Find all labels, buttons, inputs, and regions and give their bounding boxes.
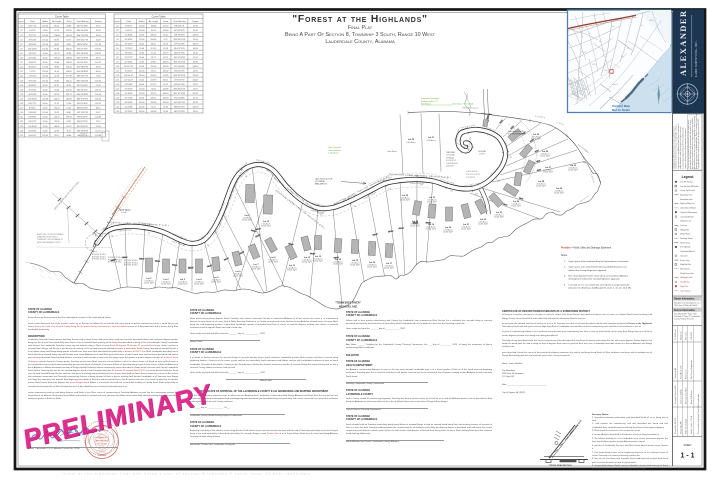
svg-text:147.93: 147.93 xyxy=(151,79,157,81)
svg-text:50.00: 50.00 xyxy=(43,58,48,60)
svg-text:N65°16'50"W: N65°16'50"W xyxy=(77,80,88,82)
svg-text:Fire Hydrant: Fire Hydrant xyxy=(680,246,691,249)
svg-text:22,651 Sq Ft: 22,651 Sq Ft xyxy=(568,169,578,172)
svg-text:Calculated Point: Calculated Point xyxy=(680,215,694,218)
svg-text:N 88°14'51" E 60.00': N 88°14'51" E 60.00' xyxy=(466,174,481,176)
svg-text:146.25: 146.25 xyxy=(54,126,60,128)
svg-text:QUARTER OF SECTION 8: QUARTER OF SECTION 8 xyxy=(37,236,57,239)
svg-text:111.79: 111.79 xyxy=(66,126,72,128)
svg-text:111°45'16": 111°45'16" xyxy=(28,126,37,128)
svg-text:1 - 1: 1 - 1 xyxy=(680,453,694,460)
svg-text:Copyright Alexander Land Surve: Copyright Alexander Land Surveying Inc a… xyxy=(697,119,700,169)
svg-text:275.00: 275.00 xyxy=(139,39,145,41)
svg-text:C9: C9 xyxy=(116,62,118,64)
svg-text:C12: C12 xyxy=(353,206,356,208)
svg-text:22,651 Sq Ft: 22,651 Sq Ft xyxy=(261,225,271,228)
svg-text:92.82: 92.82 xyxy=(163,106,168,108)
svg-text:Curve #: Curve # xyxy=(18,20,26,23)
svg-text:123.59: 123.59 xyxy=(66,30,72,32)
svg-text:22,651 Sq Ft: 22,651 Sq Ft xyxy=(494,216,504,219)
svg-text:129.77: 129.77 xyxy=(163,53,169,55)
svg-text:C24: C24 xyxy=(20,130,23,132)
svg-text:Easement: Easement xyxy=(95,234,103,237)
svg-text:125.00: 125.00 xyxy=(139,26,145,28)
svg-text:80.92: 80.92 xyxy=(54,39,59,41)
svg-text:C13: C13 xyxy=(116,79,119,81)
svg-text:Storm Drain: Storm Drain xyxy=(680,241,690,244)
svg-text:Flood Zone Line: Flood Zone Line xyxy=(680,273,693,275)
svg-text:Checked JA: Checked JA xyxy=(674,368,677,379)
svg-text:Soil Boring: Soil Boring xyxy=(680,281,689,284)
svg-text:225.00: 225.00 xyxy=(139,106,145,108)
svg-text:225.00: 225.00 xyxy=(42,98,48,100)
svg-text:41.92: 41.92 xyxy=(54,71,59,73)
svg-text:C5: C5 xyxy=(183,245,185,247)
svg-text:60.00: 60.00 xyxy=(139,53,144,55)
svg-text:59.52: 59.52 xyxy=(54,112,59,114)
svg-text:59.06: 59.06 xyxy=(54,89,59,91)
svg-text:33.93: 33.93 xyxy=(193,97,198,99)
svg-text:File Forest Highlands: File Forest Highlands xyxy=(690,360,693,379)
svg-text:Open space area shall not be b: Open space area shall not be built on pr… xyxy=(569,266,629,269)
svg-text:125.00: 125.00 xyxy=(139,75,145,77)
svg-text:Chord Bearing: Chord Bearing xyxy=(76,20,88,23)
svg-text:225.00: 225.00 xyxy=(42,71,48,73)
svg-text:Lot Line: Lot Line xyxy=(680,224,687,227)
svg-text:Hwy 72: Hwy 72 xyxy=(604,70,610,72)
svg-text:N 8°12'44" E 105.0': N 8°12'44" E 105.0' xyxy=(92,256,106,258)
svg-text:58.79: 58.79 xyxy=(66,39,71,41)
svg-text:28°46'55": 28°46'55" xyxy=(28,62,36,64)
svg-text:71.82: 71.82 xyxy=(96,76,101,78)
svg-text:121.69: 121.69 xyxy=(54,121,60,123)
svg-text:C3: C3 xyxy=(20,35,22,37)
svg-text:275.00: 275.00 xyxy=(42,35,48,37)
svg-text:86°34'53": 86°34'53" xyxy=(125,102,133,104)
svg-text:S72°36'49"E: S72°36'49"E xyxy=(174,66,185,68)
svg-text:22,651 Sq Ft: 22,651 Sq Ft xyxy=(531,138,541,141)
svg-text:Mag Nail Set: Mag Nail Set xyxy=(680,263,691,266)
svg-text:175.00: 175.00 xyxy=(42,67,48,69)
svg-text:86.54: 86.54 xyxy=(96,71,101,73)
svg-text:22,651 Sq Ft: 22,651 Sq Ft xyxy=(333,263,343,266)
svg-text:C1: C1 xyxy=(116,26,118,28)
svg-text:199.39: 199.39 xyxy=(151,102,157,104)
svg-text:22,651 Sq Ft: 22,651 Sq Ft xyxy=(211,281,221,284)
svg-text:59.27: 59.27 xyxy=(96,112,101,114)
svg-text:Open Storm D.P.U.E.: Open Storm D.P.U.E. xyxy=(315,178,333,181)
svg-text:192.90: 192.90 xyxy=(151,75,157,77)
svg-text:91.50: 91.50 xyxy=(193,57,198,59)
svg-text:C17: C17 xyxy=(497,181,500,183)
svg-text:TYPICAL ROAD SECTION: TYPICAL ROAD SECTION xyxy=(549,464,572,467)
svg-text:"TENNESSEE RIVER": "TENNESSEE RIVER" xyxy=(335,302,362,305)
svg-text:Surveyed March 2022: Surveyed March 2022 xyxy=(674,386,677,405)
svg-text:Setback Line: Setback Line xyxy=(680,220,691,223)
svg-text:LAND SURVEYING, INC.: LAND SURVEYING, INC. xyxy=(695,40,698,77)
svg-text:172.85: 172.85 xyxy=(163,75,169,77)
svg-text:Concrete Monument: Concrete Monument xyxy=(680,211,697,214)
svg-text:128.89: 128.89 xyxy=(95,117,101,119)
svg-text:138.65: 138.65 xyxy=(66,71,72,73)
svg-text:73.13: 73.13 xyxy=(96,121,101,123)
svg-text:C22: C22 xyxy=(20,121,23,123)
svg-text:65°48'22": 65°48'22" xyxy=(28,85,36,87)
svg-text:Fence Line: Fence Line xyxy=(680,260,689,262)
svg-text:5°11'15": 5°11'15" xyxy=(29,30,36,32)
svg-text:Boundary Line: Boundary Line xyxy=(680,194,692,197)
svg-text:168.24: 168.24 xyxy=(163,62,169,64)
svg-text:C10: C10 xyxy=(291,193,294,195)
svg-text:Field Book 118: Field Book 118 xyxy=(680,365,682,379)
svg-text:Area 28.4 Acres: Area 28.4 Acres xyxy=(690,390,693,404)
svg-text:C15: C15 xyxy=(20,89,23,91)
svg-text:94°45'52": 94°45'52" xyxy=(28,135,36,137)
svg-text:Sanitary Sewer: Sanitary Sewer xyxy=(680,237,693,240)
svg-text:C4: C4 xyxy=(148,233,150,235)
svg-text:22,651 Sq Ft: 22,651 Sq Ft xyxy=(233,275,243,278)
svg-text:22,651 Sq Ft: 22,651 Sq Ft xyxy=(194,283,204,286)
svg-text:N 14°52'08" W: N 14°52'08" W xyxy=(446,160,456,162)
svg-text:110°24'16": 110°24'16" xyxy=(28,48,37,50)
svg-text:Arc Length: Arc Length xyxy=(52,20,61,23)
svg-text:22,651 Sq Ft: 22,651 Sq Ft xyxy=(350,264,360,267)
svg-text:N36°52'41"E: N36°52'41"E xyxy=(77,108,88,110)
svg-text:Not to Scale: Not to Scale xyxy=(612,108,630,112)
svg-text:22,651 Sq Ft: 22,651 Sq Ft xyxy=(313,260,323,263)
svg-text:53.08: 53.08 xyxy=(54,62,59,64)
svg-text:(7.0' WIDE) 8880-DWG: (7.0' WIDE) 8880-DWG xyxy=(508,134,526,136)
svg-text:62°23'35": 62°23'35" xyxy=(28,130,36,132)
svg-text:154.25: 154.25 xyxy=(54,98,60,100)
svg-text:N21°39'34"W: N21°39'34"W xyxy=(77,53,88,55)
svg-text:225.00: 225.00 xyxy=(42,76,48,78)
svg-text:22,651 Sq Ft: 22,651 Sq Ft xyxy=(302,261,312,264)
svg-text:S65°41'26"E: S65°41'26"E xyxy=(174,53,185,55)
svg-text:47.22: 47.22 xyxy=(163,35,168,37)
svg-text:120°12'32": 120°12'32" xyxy=(124,66,133,68)
svg-text:C2: C2 xyxy=(20,30,22,32)
svg-text:108.19: 108.19 xyxy=(193,44,199,46)
svg-text:Chord: Chord xyxy=(163,20,168,23)
svg-text:22,651 Sq Ft: 22,651 Sq Ft xyxy=(144,282,154,285)
svg-text:69°59'18": 69°59'18" xyxy=(28,94,36,96)
svg-text:275.00: 275.00 xyxy=(42,44,48,46)
svg-text:15°14'54": 15°14'54" xyxy=(125,62,133,64)
svg-text:Iron Pin Set 5/8 Rebar: Iron Pin Set 5/8 Rebar xyxy=(680,185,699,188)
svg-text:119°44'58": 119°44'58" xyxy=(28,98,37,100)
svg-text:14.69: 14.69 xyxy=(193,26,198,28)
svg-text:S31°26'35"E: S31°26'35"E xyxy=(174,35,185,37)
svg-text:N 8°12'44" E 105.0': N 8°12'44" E 105.0' xyxy=(124,262,138,264)
svg-text:33.42: 33.42 xyxy=(151,30,156,32)
svg-text:Date 03-14-2022: Date 03-14-2022 xyxy=(685,418,688,434)
svg-text:37°42'52": 37°42'52" xyxy=(125,111,133,113)
svg-text:22,651 Sq Ft: 22,651 Sq Ft xyxy=(367,266,377,269)
svg-text:25.00: 25.00 xyxy=(139,48,144,50)
svg-text:120.68: 120.68 xyxy=(95,135,101,137)
svg-text:93°46'46": 93°46'46" xyxy=(28,112,36,114)
svg-text:13.25: 13.25 xyxy=(151,70,156,72)
svg-text:Benchmark: Benchmark xyxy=(680,268,689,271)
svg-text:C10: C10 xyxy=(20,67,23,69)
svg-text:C19: C19 xyxy=(116,106,119,108)
svg-text:50.00: 50.00 xyxy=(43,30,48,32)
svg-text:21.57: 21.57 xyxy=(54,103,59,105)
svg-text:22,651 Sq Ft: 22,651 Sq Ft xyxy=(540,155,550,158)
svg-text:26.99: 26.99 xyxy=(193,111,198,113)
svg-text:ALEXANDER: ALEXANDER xyxy=(679,9,688,76)
svg-text:178.94: 178.94 xyxy=(163,30,169,32)
svg-text:C13: C13 xyxy=(388,189,391,191)
svg-text:Provides = Public Utility and: Provides = Public Utility and Drainage E… xyxy=(561,247,612,250)
svg-text:Lot 36: Lot 36 xyxy=(408,138,415,141)
svg-text:plan prior to obtaining a buil: plan prior to obtaining a building permi… xyxy=(569,286,632,289)
svg-text:C14: C14 xyxy=(116,84,119,86)
svg-text:105.00': 105.00' xyxy=(399,228,405,230)
svg-text:N 8°12'44" E 105.0': N 8°12'44" E 105.0' xyxy=(124,265,138,267)
svg-text:96.12: 96.12 xyxy=(96,26,101,28)
svg-text:Owner Information: Owner Information xyxy=(674,298,695,301)
svg-text:Oak: Oak xyxy=(611,26,614,28)
svg-text:C8: C8 xyxy=(116,57,118,59)
svg-text:WEST LINE OF THE NORTHEAST: WEST LINE OF THE NORTHEAST xyxy=(37,233,64,236)
svg-text:74.50: 74.50 xyxy=(151,88,156,90)
svg-text:139.28: 139.28 xyxy=(151,111,157,113)
svg-text:32.28: 32.28 xyxy=(54,76,59,78)
svg-text:N 8°12'44" E 105.0': N 8°12'44" E 105.0' xyxy=(124,260,138,262)
svg-text:30.15: 30.15 xyxy=(163,84,168,86)
svg-text:38°50'49": 38°50'49" xyxy=(28,44,36,46)
svg-text:C8: C8 xyxy=(245,176,247,178)
svg-text:67.40: 67.40 xyxy=(96,126,101,128)
svg-text:10.92: 10.92 xyxy=(193,88,198,90)
svg-text:34.92: 34.92 xyxy=(66,121,71,123)
svg-text:78°23'55": 78°23'55" xyxy=(125,53,133,55)
svg-text:53°39'56": 53°39'56" xyxy=(28,117,36,119)
svg-text:Legend: Legend xyxy=(682,175,694,179)
svg-text:N 8°12'44" E 105.0': N 8°12'44" E 105.0' xyxy=(108,257,122,259)
svg-text:7865 Hwy 43 Killen AL 35645: 7865 Hwy 43 Killen AL 35645 xyxy=(674,304,697,307)
svg-text:25.00: 25.00 xyxy=(43,89,48,91)
svg-text:Project No 22-018: Project No 22-018 xyxy=(674,417,677,434)
svg-text:County Probate Records: County Probate Records xyxy=(674,317,694,320)
svg-text:C3: C3 xyxy=(111,236,113,238)
svg-text:87.27: 87.27 xyxy=(54,85,59,87)
svg-text:58°17'25": 58°17'25" xyxy=(28,103,36,105)
svg-text:Curve Table: Curve Table xyxy=(55,14,69,18)
svg-text:189.79: 189.79 xyxy=(66,94,72,96)
svg-text:108.55: 108.55 xyxy=(95,48,101,50)
svg-text:C10: C10 xyxy=(116,66,119,68)
svg-text:49°16'32": 49°16'32" xyxy=(28,39,36,41)
svg-text:N 8°12'44" E 105.0': N 8°12'44" E 105.0' xyxy=(92,254,106,256)
svg-text:38.39: 38.39 xyxy=(96,30,101,32)
svg-text:S52°54'28"E: S52°54'28"E xyxy=(174,97,185,99)
svg-text:25.00: 25.00 xyxy=(43,53,48,55)
svg-text:N26°39'32"W: N26°39'32"W xyxy=(174,75,185,77)
svg-text:9.79: 9.79 xyxy=(164,39,168,41)
svg-text:132.00: 132.00 xyxy=(193,75,199,77)
svg-text:126.18: 126.18 xyxy=(163,102,169,104)
svg-text:22,651 Sq Ft: 22,651 Sq Ft xyxy=(443,231,453,234)
svg-text:178.83: 178.83 xyxy=(54,35,60,37)
svg-text:69.40: 69.40 xyxy=(193,30,198,32)
svg-text:122.15: 122.15 xyxy=(151,93,157,95)
svg-text:50.00: 50.00 xyxy=(139,62,144,64)
svg-text:WALKER LAKE: WALKER LAKE xyxy=(339,305,358,308)
svg-text:22,651 Sq Ft: 22,651 Sq Ft xyxy=(178,283,188,286)
svg-text:60.00: 60.00 xyxy=(139,97,144,99)
svg-text:206.38: 206.38 xyxy=(151,39,157,41)
svg-text:COURT: COURT xyxy=(479,154,485,156)
svg-text:44.46: 44.46 xyxy=(66,135,71,137)
svg-text:50.00: 50.00 xyxy=(43,121,48,123)
svg-text:S25°16'16"W: S25°16'16"W xyxy=(77,112,88,114)
svg-text:Revision 2: Revision 2 xyxy=(686,369,688,379)
svg-text:Arc Length: Arc Length xyxy=(149,20,158,23)
svg-text:157.69: 157.69 xyxy=(95,44,101,46)
svg-text:25.00: 25.00 xyxy=(139,57,144,59)
svg-text:39°39'30": 39°39'30" xyxy=(125,39,133,41)
svg-text:158.37: 158.37 xyxy=(95,53,101,55)
svg-text:225.00: 225.00 xyxy=(139,111,145,113)
svg-text:120.04: 120.04 xyxy=(66,67,72,69)
svg-text:C6: C6 xyxy=(207,245,209,247)
svg-text:Rd: Rd xyxy=(621,56,623,58)
svg-text:25.93: 25.93 xyxy=(163,111,168,113)
svg-text:124.39: 124.39 xyxy=(163,88,169,90)
svg-text:60.89: 60.89 xyxy=(193,62,198,64)
svg-text:8°24'14": 8°24'14" xyxy=(29,108,36,110)
svg-text:C11: C11 xyxy=(321,213,324,215)
svg-text:69°26'57": 69°26'57" xyxy=(28,67,36,69)
svg-text:C14: C14 xyxy=(420,185,423,187)
svg-text:N66°40'57"E: N66°40'57"E xyxy=(174,106,185,108)
svg-text:C12: C12 xyxy=(20,76,23,78)
svg-text:Non road alignment forms short: Non road alignment forms short lot be ac… xyxy=(569,275,629,278)
svg-text:8.41: 8.41 xyxy=(67,130,71,132)
svg-text:146.13: 146.13 xyxy=(163,93,169,95)
svg-text:S23°47'26"E: S23°47'26"E xyxy=(174,84,185,86)
svg-text:Iron Pin Found: Iron Pin Found xyxy=(680,181,692,184)
svg-text:22,651 Sq Ft: 22,651 Sq Ft xyxy=(251,268,261,271)
svg-text:25.00: 25.00 xyxy=(43,108,48,110)
svg-text:Rd: Rd xyxy=(599,41,601,43)
svg-text:N14°57'45"E: N14°57'45"E xyxy=(174,48,185,50)
svg-text:Gas Line: Gas Line xyxy=(680,255,687,257)
svg-text:22,651 Sq Ft: 22,651 Sq Ft xyxy=(161,283,171,286)
svg-text:development without the County: development without the County Engineers… xyxy=(569,278,621,281)
svg-text:C8: C8 xyxy=(20,58,22,60)
svg-text:C9: C9 xyxy=(20,62,22,64)
svg-text:N50°46'22"W: N50°46'22"W xyxy=(174,88,185,90)
svg-text:149.42: 149.42 xyxy=(163,70,169,72)
svg-text:50.00: 50.00 xyxy=(43,103,48,105)
svg-text:Closure 1:15000+: Closure 1:15000+ xyxy=(679,388,682,404)
svg-text:196.96: 196.96 xyxy=(66,117,72,119)
svg-text:136.04: 136.04 xyxy=(163,97,169,99)
svg-text:S21°57'38"W: S21°57'38"W xyxy=(174,57,185,59)
svg-text:48.76: 48.76 xyxy=(193,102,198,104)
svg-text:25.00: 25.00 xyxy=(43,117,48,119)
svg-text:31°20'21": 31°20'21" xyxy=(125,70,133,72)
svg-text:148.42: 148.42 xyxy=(193,66,199,68)
svg-text:39.02: 39.02 xyxy=(66,85,71,87)
svg-text:56°10'43": 56°10'43" xyxy=(125,93,133,95)
svg-text:Radius: Radius xyxy=(139,21,145,23)
svg-text:104.07: 104.07 xyxy=(193,79,199,81)
svg-text:105.00': 105.00' xyxy=(188,267,194,269)
svg-text:Tangent: Tangent xyxy=(95,20,102,23)
svg-text:C25: C25 xyxy=(20,135,23,137)
svg-text:N77°30'41"E: N77°30'41"E xyxy=(77,85,88,87)
svg-text:101°54'16": 101°54'16" xyxy=(124,75,133,77)
svg-text:S79°51'43"E: S79°51'43"E xyxy=(174,44,185,46)
svg-text:Rd: Rd xyxy=(585,89,587,91)
svg-text:84.51: 84.51 xyxy=(163,79,168,81)
svg-text:N10°44'23"W: N10°44'23"W xyxy=(174,39,185,41)
svg-text:N84°54'44"W: N84°54'44"W xyxy=(77,30,88,32)
svg-text:C1: C1 xyxy=(20,26,22,28)
svg-text:225.00: 225.00 xyxy=(139,102,145,104)
svg-text:22,651 Sq Ft: 22,651 Sq Ft xyxy=(427,201,437,204)
svg-text:C15: C15 xyxy=(450,191,453,193)
svg-text:60.00: 60.00 xyxy=(139,84,144,86)
svg-text:N 62°14'22" E 132.8': N 62°14'22" E 132.8' xyxy=(410,175,425,177)
svg-text:82°17'11": 82°17'11" xyxy=(29,26,37,28)
svg-text:275.00: 275.00 xyxy=(42,39,48,41)
svg-text:WEST LAUDERDALE COUNTY: WEST LAUDERDALE COUNTY xyxy=(37,241,62,244)
svg-text:45.77: 45.77 xyxy=(96,58,101,60)
svg-text:169.83: 169.83 xyxy=(66,58,72,60)
svg-text:Wetland Limits: Wetland Limits xyxy=(680,276,692,279)
svg-text:C12: C12 xyxy=(116,75,119,77)
svg-text:88.12: 88.12 xyxy=(96,108,101,110)
svg-text:144.34: 144.34 xyxy=(95,98,101,100)
svg-text:153.14: 153.14 xyxy=(54,58,60,60)
svg-text:103.85: 103.85 xyxy=(66,62,72,64)
svg-text:71°29'52": 71°29'52" xyxy=(125,48,133,50)
svg-text:59°10'56": 59°10'56" xyxy=(28,80,36,82)
svg-text:N34°43'48"W: N34°43'48"W xyxy=(77,94,88,96)
svg-text:C2: C2 xyxy=(116,30,118,32)
svg-text:Ln: Ln xyxy=(641,25,643,27)
svg-text:116.93: 116.93 xyxy=(66,89,72,91)
svg-text:Open Space B: Open Space B xyxy=(328,147,342,149)
svg-text:S9°59'27"W: S9°59'27"W xyxy=(174,79,184,81)
svg-text:207.05: 207.05 xyxy=(151,48,157,50)
svg-text:22,651 Sq Ft: 22,651 Sq Ft xyxy=(461,228,471,231)
svg-text:22,651 Sq Ft: 22,651 Sq Ft xyxy=(554,192,564,195)
svg-text:21.45: 21.45 xyxy=(96,85,101,87)
svg-text:105.00': 105.00' xyxy=(139,258,145,260)
svg-text:85°17'56": 85°17'56" xyxy=(125,97,133,99)
svg-text:t may be disclosed by a full a: t may be disclosed by a full and accurat… xyxy=(684,128,687,169)
svg-text:C19: C19 xyxy=(20,108,23,110)
svg-text:N36°39'25"E: N36°39'25"E xyxy=(77,121,88,123)
svg-text:125.00: 125.00 xyxy=(139,70,145,72)
svg-text:56°47'48": 56°47'48" xyxy=(125,106,133,108)
svg-text:190.24: 190.24 xyxy=(54,108,60,110)
svg-text:144.89: 144.89 xyxy=(66,98,72,100)
svg-text:L=18.42 R=25.00: L=18.42 R=25.00 xyxy=(466,171,478,173)
svg-text:Lot 37: Lot 37 xyxy=(428,136,435,139)
svg-text:22,651 Sq Ft: 22,651 Sq Ft xyxy=(543,171,553,174)
svg-text:225.00: 225.00 xyxy=(42,80,48,82)
svg-text:25.00: 25.00 xyxy=(43,126,48,128)
svg-text:S83°31'17"W: S83°31'17"W xyxy=(77,76,88,78)
